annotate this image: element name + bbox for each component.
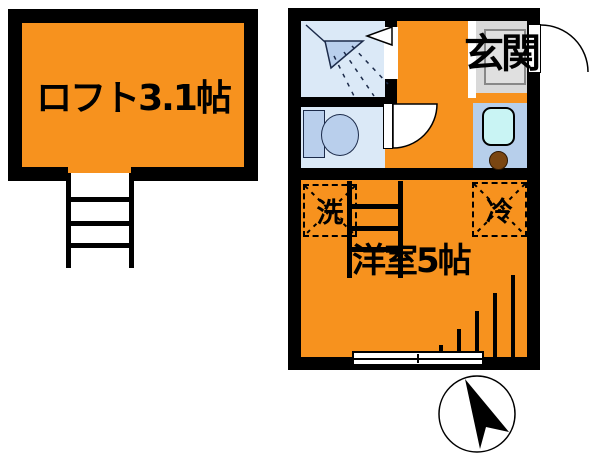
door-swing-icon [393, 104, 437, 148]
shower-spray-line [352, 46, 388, 84]
window-center-tick [417, 354, 419, 363]
main-room-label: 洋室5帖 [352, 244, 470, 278]
floor-plan: ロフト3.1帖 洗 冷 [0, 0, 600, 467]
entrance-label: 玄関 [464, 34, 538, 74]
shower-head-icon [325, 41, 363, 68]
shower-arm-line [306, 25, 325, 42]
door-swing-icon [541, 25, 588, 72]
shower-spray-line [344, 52, 374, 96]
shower-nozzle-icon [367, 27, 392, 45]
